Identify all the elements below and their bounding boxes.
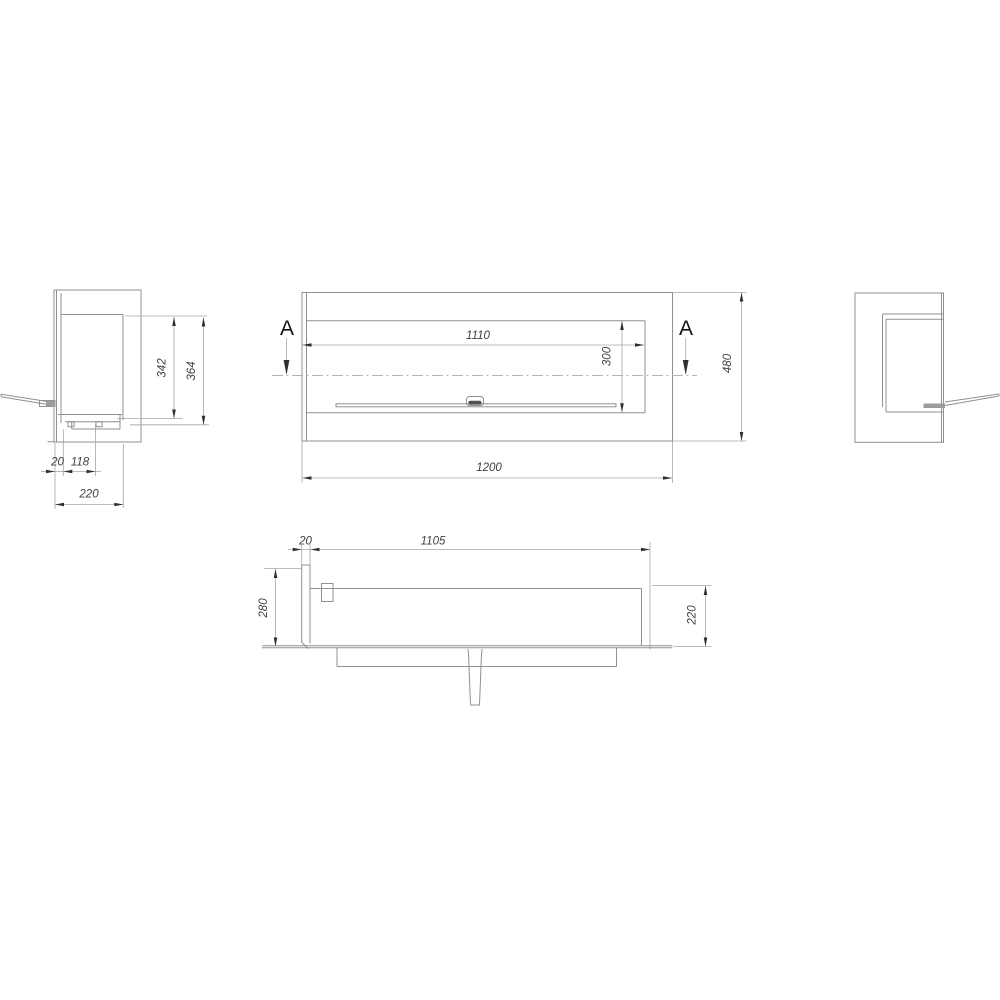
arrowhead — [740, 293, 744, 302]
section-arrow — [683, 360, 689, 375]
dim-text-220: 220 — [687, 605, 699, 626]
hinge-bracket — [924, 404, 946, 409]
dim-text-220: 220 — [78, 489, 99, 501]
dim-text-118: 118 — [71, 457, 90, 469]
arrowhead — [663, 476, 672, 480]
arrowhead — [303, 476, 312, 480]
dim-text-300: 300 — [602, 346, 614, 366]
arrowhead — [46, 470, 55, 474]
arrowhead — [740, 432, 744, 441]
bottom-section-view: 20 1105 280 — [258, 536, 711, 706]
burner-slider-knob-grip — [469, 401, 482, 405]
arrowhead — [620, 403, 624, 412]
hinge-bracket — [46, 401, 55, 407]
right-side-view — [855, 293, 999, 442]
dim-text-20: 20 — [50, 457, 64, 469]
dim-text-280: 280 — [258, 598, 270, 619]
arrowhead — [704, 586, 708, 595]
arrowhead — [87, 470, 96, 474]
section-arrow — [284, 360, 290, 375]
arrowhead — [63, 470, 72, 474]
center-mounting-tab — [468, 649, 482, 705]
arrowhead — [311, 548, 320, 552]
section-label-right: A — [679, 317, 693, 340]
technical-drawing-sheet: 342 364 20 118 220 1110 — [0, 0, 1000, 1000]
arrowhead — [172, 410, 176, 419]
arrowhead — [641, 548, 650, 552]
outer-outline — [302, 293, 673, 442]
tray-notch — [68, 422, 74, 427]
dim-text-1105: 1105 — [421, 536, 446, 548]
dim-text-1110: 1110 — [466, 330, 490, 342]
arrowhead — [635, 343, 644, 347]
arrowhead — [172, 317, 176, 326]
clip-detail — [322, 584, 334, 602]
arrowhead — [620, 321, 624, 330]
left-side-view: 342 364 20 118 220 — [1, 290, 209, 509]
dim-text-342: 342 — [157, 358, 169, 378]
front-view: 1110 300 1200 480 A A — [272, 293, 747, 484]
arrowhead — [274, 638, 278, 647]
arrowhead — [114, 503, 123, 507]
arrowhead — [202, 318, 206, 327]
tray-notch — [96, 422, 102, 427]
dim-text-480: 480 — [722, 353, 734, 373]
section-label-left: A — [280, 317, 294, 340]
arrowhead — [274, 569, 278, 578]
dim-text-364: 364 — [186, 361, 198, 380]
arrowhead — [55, 503, 64, 507]
outer-outline — [54, 290, 141, 442]
arrowhead — [202, 416, 206, 425]
fireplace-dimension-drawing: 342 364 20 118 220 1110 — [0, 0, 1000, 1000]
arrowhead — [293, 548, 302, 552]
dim-text-1200: 1200 — [476, 462, 502, 474]
outer-outline — [855, 293, 944, 442]
arrowhead — [704, 638, 708, 647]
